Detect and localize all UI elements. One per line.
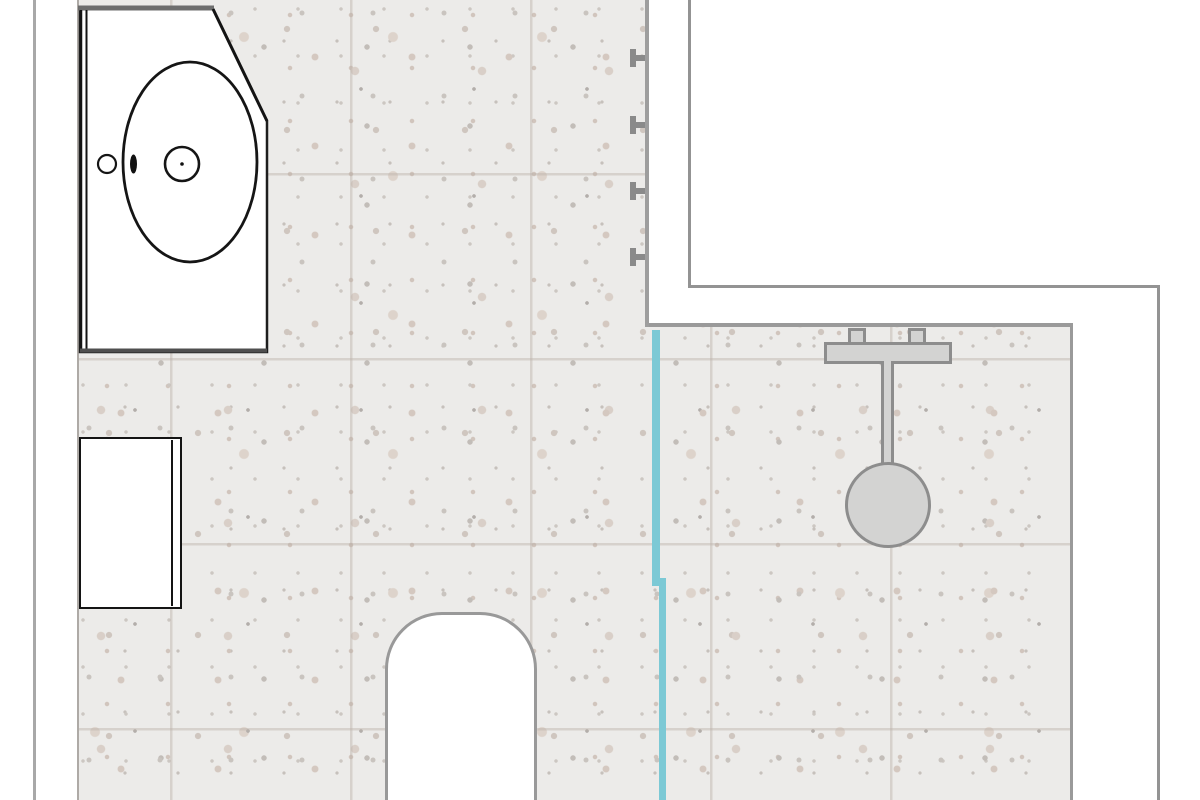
washbasin[interactable] (70, 0, 280, 365)
shower-arm (881, 361, 894, 465)
hook-icon (635, 55, 645, 61)
lever (130, 155, 137, 174)
left-wall-line (33, 0, 36, 800)
hook-icon (635, 188, 645, 194)
adjacent-room-left-wall (688, 0, 691, 288)
hook-icon (635, 122, 645, 128)
shower-wall-line (645, 0, 649, 327)
floor-plan-canvas (0, 0, 1200, 800)
side-cabinet[interactable] (79, 437, 182, 609)
toilet[interactable] (385, 612, 537, 800)
adjacent-room-right-wall (1157, 285, 1160, 800)
shower-area-top-edge (645, 323, 1072, 327)
glass-partition-lower[interactable] (659, 578, 666, 800)
adjacent-room-bottom-wall (688, 285, 1160, 288)
hook-icon (635, 254, 645, 260)
glass-partition-upper[interactable] (652, 330, 660, 586)
shower-area-right-edge (1070, 323, 1073, 800)
shower-head-icon (845, 462, 931, 548)
cabinet-door-edge (171, 440, 173, 606)
